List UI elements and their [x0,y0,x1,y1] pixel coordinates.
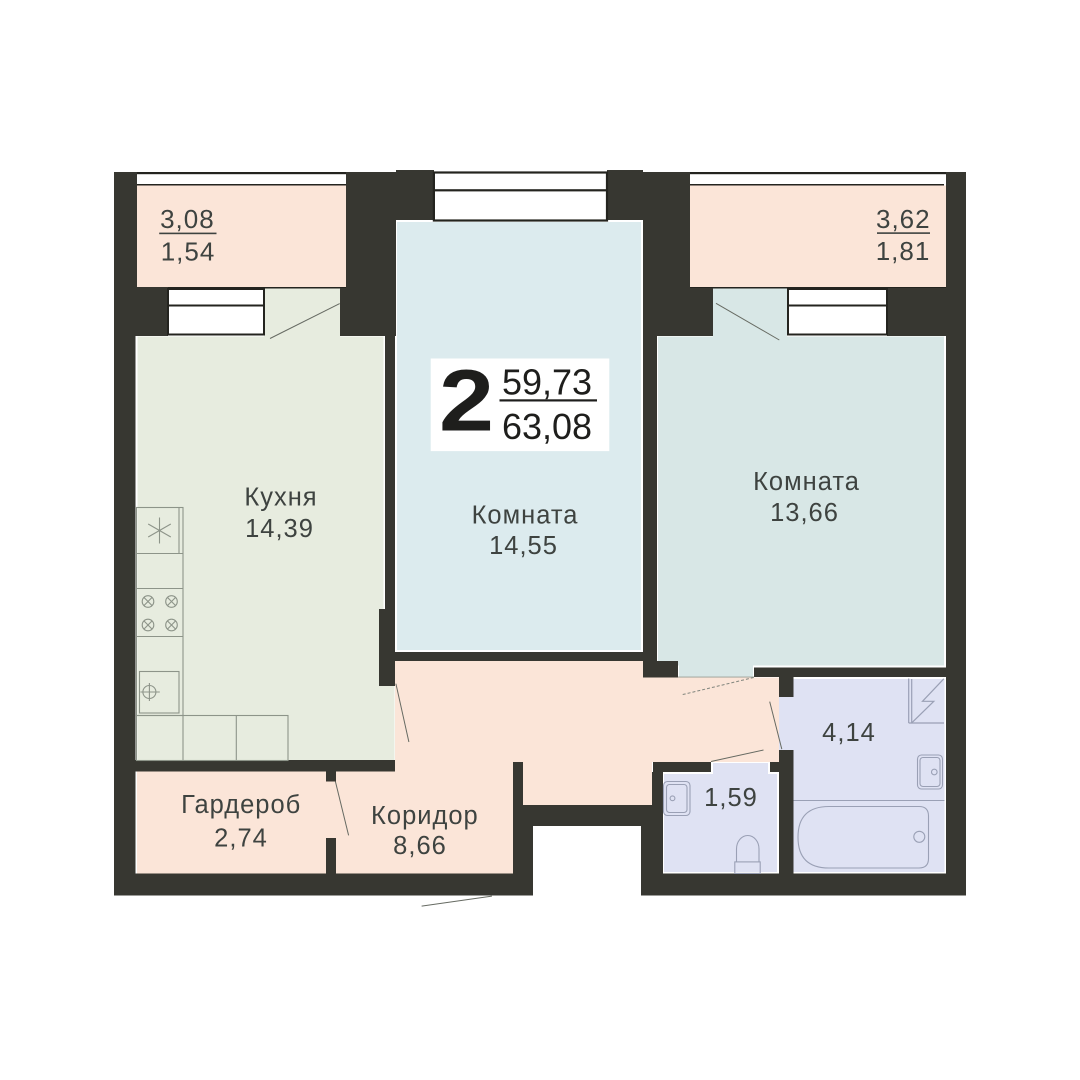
svg-text:Гардероб: Гардероб [181,791,301,819]
svg-text:2: 2 [439,353,494,450]
svg-text:8,66: 8,66 [393,832,447,860]
svg-text:14,55: 14,55 [489,532,558,560]
svg-text:Коридор: Коридор [371,802,479,830]
svg-text:Комната: Комната [472,501,579,529]
svg-text:59,73: 59,73 [502,362,592,403]
svg-text:13,66: 13,66 [770,499,839,527]
svg-text:Кухня: Кухня [244,484,317,512]
svg-text:Комната: Комната [753,468,860,496]
svg-text:1,54: 1,54 [161,237,216,267]
svg-text:14,39: 14,39 [245,515,314,543]
svg-text:2,74: 2,74 [214,825,268,853]
svg-text:1,59: 1,59 [704,784,758,812]
svg-text:63,08: 63,08 [502,406,592,447]
svg-text:1,81: 1,81 [876,236,931,266]
svg-text:3,62: 3,62 [876,204,931,234]
svg-text:3,08: 3,08 [160,204,215,234]
svg-text:4,14: 4,14 [822,719,876,747]
